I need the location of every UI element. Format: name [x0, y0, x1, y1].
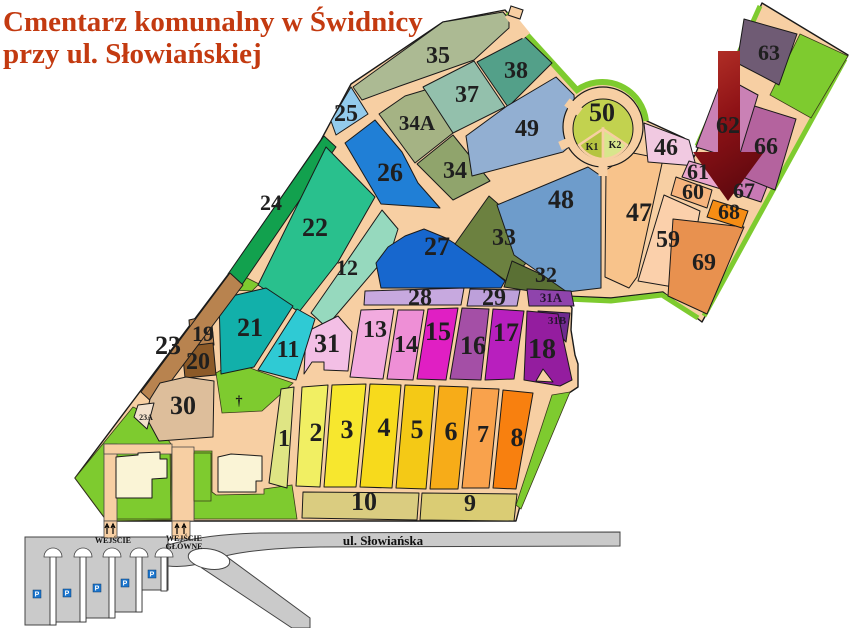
svg-text:25: 25 [334, 101, 358, 127]
svg-text:63: 63 [758, 40, 780, 65]
svg-text:30: 30 [170, 391, 196, 420]
svg-text:1: 1 [278, 426, 290, 452]
svg-text:59: 59 [656, 227, 680, 253]
svg-text:GŁÓWNE: GŁÓWNE [166, 541, 203, 551]
svg-text:66: 66 [754, 134, 778, 160]
svg-text:7: 7 [477, 422, 489, 448]
svg-text:21: 21 [237, 313, 263, 342]
svg-text:13: 13 [363, 317, 387, 343]
svg-text:23: 23 [155, 331, 181, 360]
svg-text:P: P [35, 592, 40, 599]
svg-text:37: 37 [455, 82, 479, 108]
svg-text:P: P [150, 572, 155, 579]
svg-text:32: 32 [535, 262, 557, 287]
svg-text:WEJŚCIE: WEJŚCIE [95, 535, 131, 545]
svg-text:69: 69 [692, 250, 716, 276]
svg-text:K2: K2 [609, 140, 622, 151]
svg-text:46: 46 [654, 135, 678, 161]
svg-text:†: † [236, 394, 243, 409]
svg-text:31B: 31B [548, 315, 567, 327]
svg-text:62: 62 [716, 113, 740, 139]
svg-text:9: 9 [464, 491, 476, 517]
svg-text:50: 50 [589, 98, 615, 127]
svg-text:Cmentarz komunalny w Świdnicy: Cmentarz komunalny w Świdnicy [3, 5, 423, 38]
svg-text:19: 19 [192, 321, 214, 346]
svg-text:K1: K1 [586, 142, 599, 153]
svg-text:29: 29 [482, 285, 506, 311]
svg-text:68: 68 [718, 199, 740, 224]
svg-text:3: 3 [341, 415, 354, 444]
svg-text:34: 34 [443, 158, 467, 184]
svg-text:15: 15 [425, 317, 451, 346]
svg-text:16: 16 [460, 331, 486, 360]
svg-text:38: 38 [504, 58, 528, 84]
svg-text:35: 35 [426, 43, 450, 69]
svg-text:26: 26 [377, 158, 403, 187]
svg-text:2: 2 [310, 418, 323, 447]
svg-text:10: 10 [351, 487, 377, 516]
svg-text:5: 5 [411, 415, 424, 444]
svg-text:20: 20 [186, 349, 210, 375]
svg-text:8: 8 [511, 423, 524, 452]
svg-text:11: 11 [277, 337, 300, 363]
svg-text:ul. Słowiańska: ul. Słowiańska [343, 533, 424, 548]
svg-text:18: 18 [528, 334, 556, 365]
svg-text:49: 49 [515, 116, 539, 142]
svg-text:14: 14 [394, 332, 418, 358]
svg-text:P: P [95, 586, 100, 593]
svg-text:24: 24 [260, 190, 282, 215]
svg-text:61: 61 [687, 159, 709, 184]
svg-text:23A: 23A [139, 413, 153, 422]
svg-text:17: 17 [493, 318, 519, 347]
svg-text:4: 4 [378, 413, 391, 442]
svg-text:22: 22 [302, 213, 328, 242]
svg-text:28: 28 [408, 285, 432, 311]
svg-text:31A: 31A [540, 290, 563, 305]
svg-text:34A: 34A [399, 111, 436, 135]
svg-text:33: 33 [492, 225, 516, 251]
svg-text:12: 12 [336, 255, 358, 280]
svg-text:P: P [123, 581, 128, 588]
svg-text:27: 27 [424, 232, 450, 261]
svg-text:47: 47 [626, 198, 652, 227]
svg-text:48: 48 [548, 185, 574, 214]
svg-text:P: P [65, 591, 70, 598]
svg-text:31: 31 [314, 329, 340, 358]
svg-text:przy ul. Słowiańskiej: przy ul. Słowiańskiej [3, 38, 262, 70]
svg-text:6: 6 [445, 417, 458, 446]
